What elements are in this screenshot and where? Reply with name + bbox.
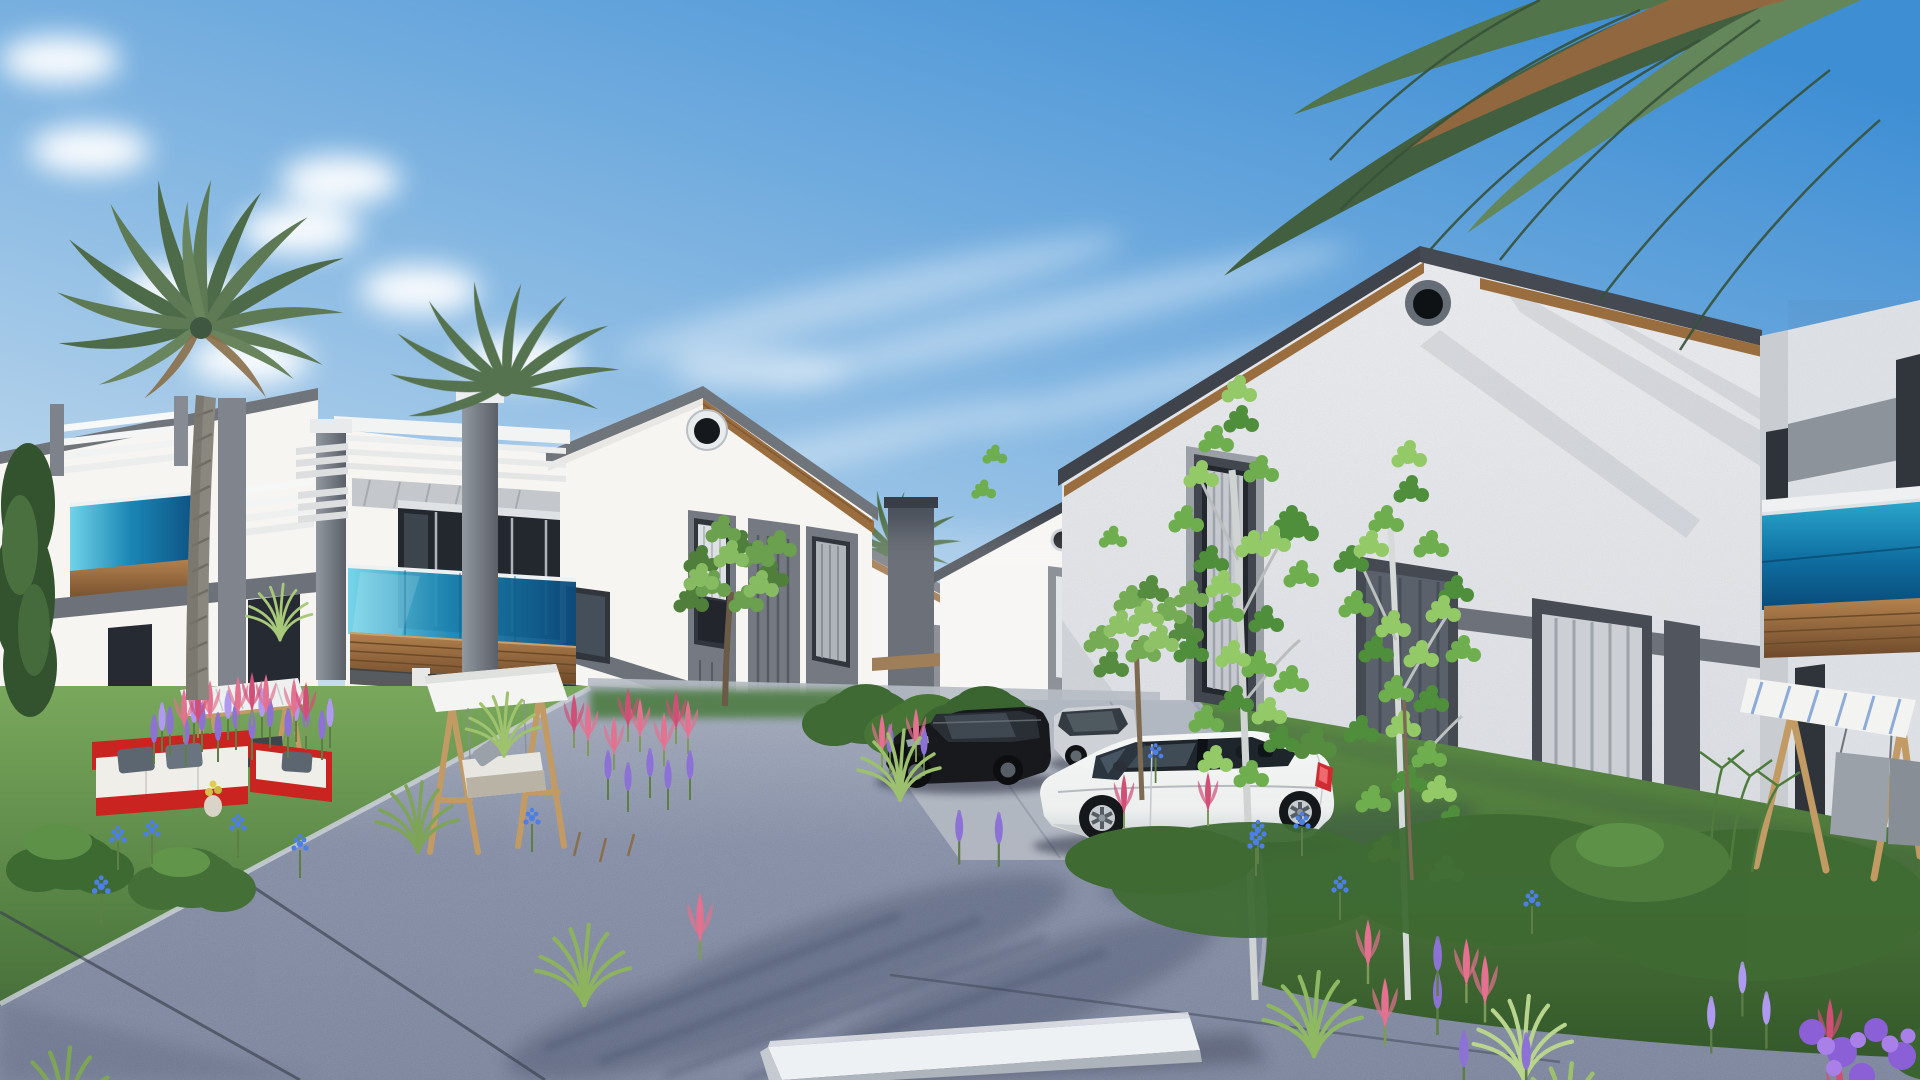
architectural-render bbox=[0, 0, 1920, 1080]
pergola-pillar-right bbox=[456, 390, 504, 676]
gable-vent-b bbox=[1405, 280, 1451, 326]
scene-canvas bbox=[0, 0, 1920, 1080]
gable-vent bbox=[687, 410, 727, 450]
cypress bbox=[0, 443, 57, 717]
